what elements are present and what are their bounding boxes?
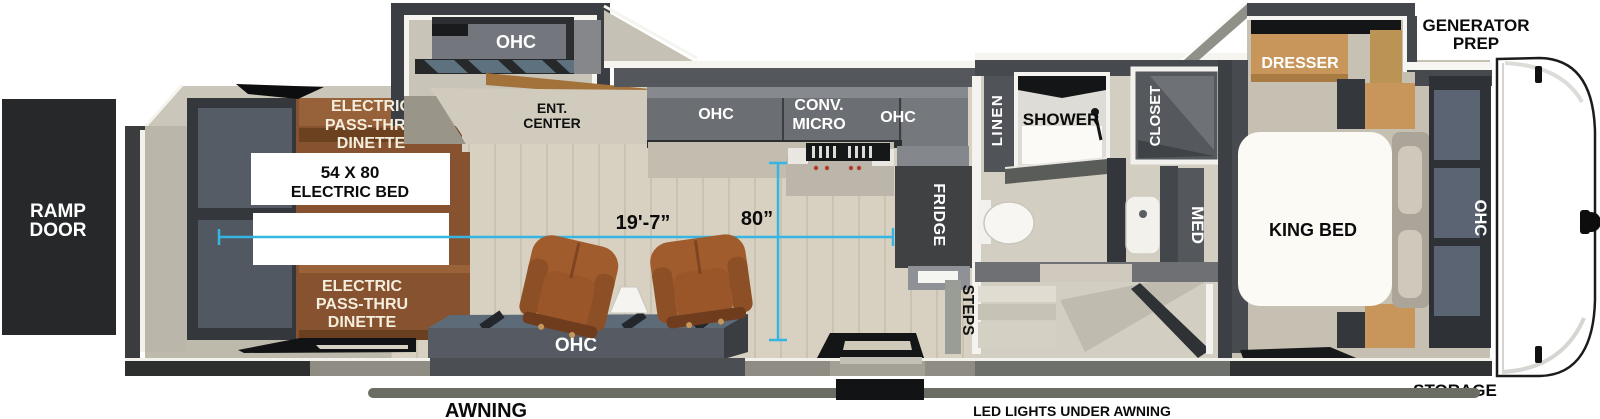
svg-text:STEPS: STEPS: [959, 285, 976, 336]
svg-text:ELECTRIC: ELECTRIC: [322, 278, 402, 295]
svg-text:DINETTE: DINETTE: [328, 314, 397, 331]
svg-text:PREP: PREP: [1453, 34, 1499, 53]
svg-text:LED LIGHTS UNDER AWNING: LED LIGHTS UNDER AWNING: [973, 403, 1171, 419]
svg-text:PASS-THRU: PASS-THRU: [316, 296, 408, 313]
svg-text:19'-7”: 19'-7”: [616, 212, 671, 234]
svg-text:OHC: OHC: [1471, 200, 1489, 237]
svg-text:RAMP: RAMP: [30, 201, 86, 222]
svg-text:GENERATOR: GENERATOR: [1422, 16, 1529, 35]
svg-text:FRIDGE: FRIDGE: [930, 183, 947, 246]
svg-text:PASS-THRU: PASS-THRU: [325, 117, 417, 134]
svg-text:OHC: OHC: [698, 106, 734, 123]
svg-text:MED: MED: [1188, 206, 1207, 244]
svg-text:ENT.: ENT.: [537, 100, 567, 116]
svg-text:AWNING: AWNING: [445, 400, 527, 419]
svg-text:DINETTE: DINETTE: [337, 135, 406, 152]
svg-text:SHOWER: SHOWER: [1023, 110, 1100, 129]
svg-text:LINEN: LINEN: [989, 94, 1006, 147]
svg-text:ELECTRIC: ELECTRIC: [331, 98, 411, 115]
svg-text:DOOR: DOOR: [30, 220, 87, 241]
svg-text:54 X 80: 54 X 80: [321, 163, 380, 182]
svg-text:CONV.: CONV.: [794, 97, 843, 114]
svg-text:CENTER: CENTER: [523, 115, 581, 131]
svg-text:OHC: OHC: [880, 109, 916, 126]
svg-text:ELECTRIC BED: ELECTRIC BED: [291, 184, 409, 201]
svg-text:DRESSER: DRESSER: [1261, 55, 1339, 72]
svg-text:CLOSET: CLOSET: [1147, 86, 1164, 147]
svg-text:80”: 80”: [741, 208, 773, 230]
svg-text:KING BED: KING BED: [1269, 220, 1357, 240]
svg-text:MICRO: MICRO: [792, 116, 845, 133]
svg-text:OHC: OHC: [496, 32, 536, 52]
